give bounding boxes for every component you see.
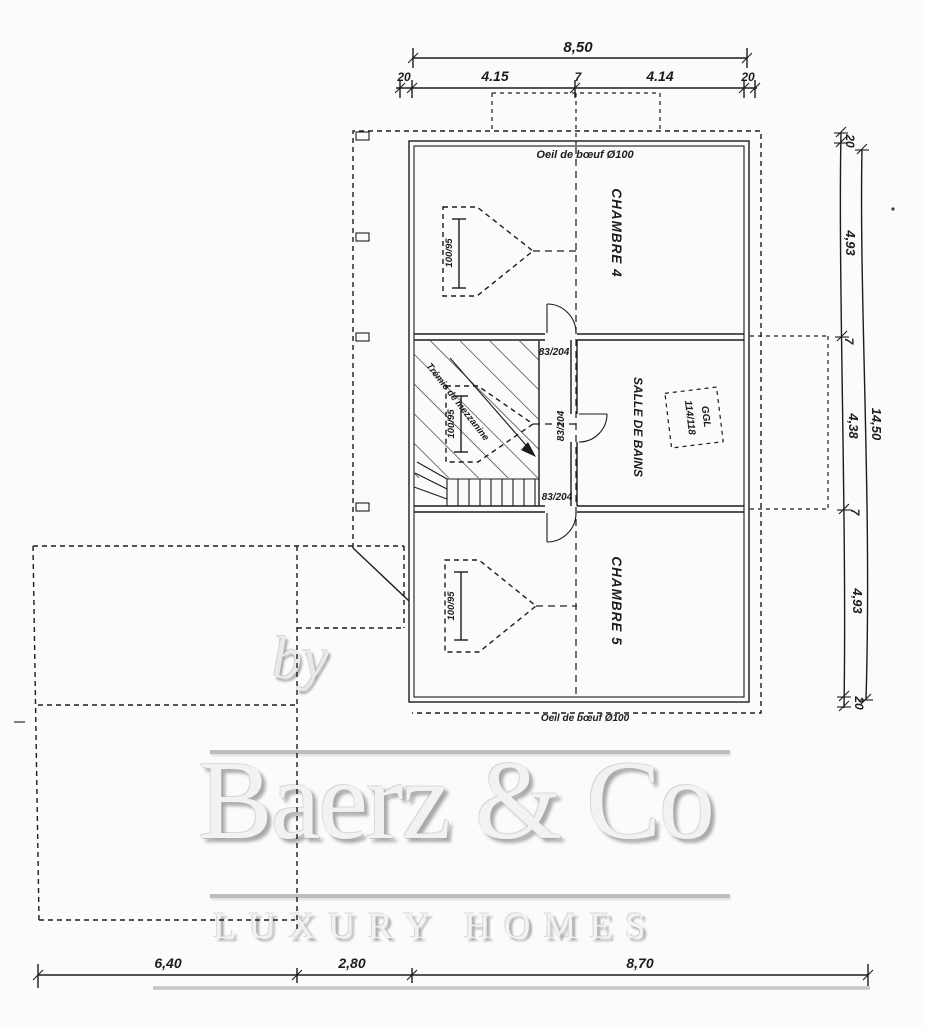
dim-bottom-seg-1: 2,80 bbox=[337, 955, 365, 971]
terrace-outline bbox=[33, 546, 409, 932]
dim-bottom-seg-0: 6,40 bbox=[154, 955, 181, 971]
floorplan-overlay: 6,40 2,80 8,70 bbox=[0, 0, 925, 1026]
dim-bottom: 6,40 2,80 8,70 bbox=[33, 955, 873, 988]
dim-bottom-seg-2: 8,70 bbox=[626, 955, 653, 971]
roof-hip-line bbox=[353, 548, 409, 601]
floorplan-page: 8,50 20 4.15 7 4.14 20 bbox=[0, 0, 925, 1026]
